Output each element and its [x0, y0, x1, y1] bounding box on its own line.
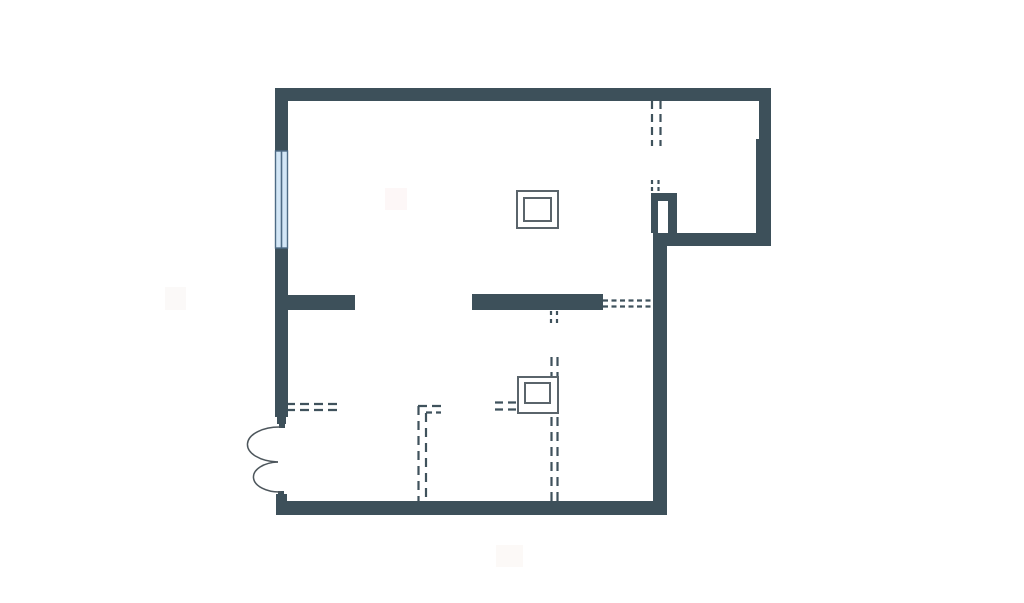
- door-jamb-bottom-b: [276, 494, 287, 502]
- wall-stub-left: [288, 295, 355, 310]
- symbol-square-upper-inner: [524, 198, 551, 221]
- floor-plan-image: [0, 0, 1024, 603]
- double-swing-door-arc-2: [253, 462, 281, 492]
- wall-left-upper: [275, 101, 288, 151]
- door-jamb-top-a: [277, 417, 286, 424]
- wall-alcove-bottom: [653, 233, 771, 246]
- wall-right-mid: [756, 139, 771, 246]
- wall-top: [275, 88, 771, 101]
- watermark-top: [385, 188, 407, 210]
- floor-plan-canvas: [0, 0, 1024, 603]
- watermark-bottom: [496, 545, 523, 567]
- wall-right-upper: [759, 101, 771, 139]
- shaft-wall-right: [668, 193, 677, 233]
- watermark-left: [165, 287, 186, 310]
- wall-left-main: [275, 248, 288, 417]
- symbol-square-lower-inner: [525, 383, 550, 403]
- double-swing-door-arc-1: [247, 427, 281, 462]
- wall-partition-mid: [472, 294, 603, 310]
- wall-bottom: [276, 501, 667, 515]
- wall-center-vertical: [653, 246, 667, 515]
